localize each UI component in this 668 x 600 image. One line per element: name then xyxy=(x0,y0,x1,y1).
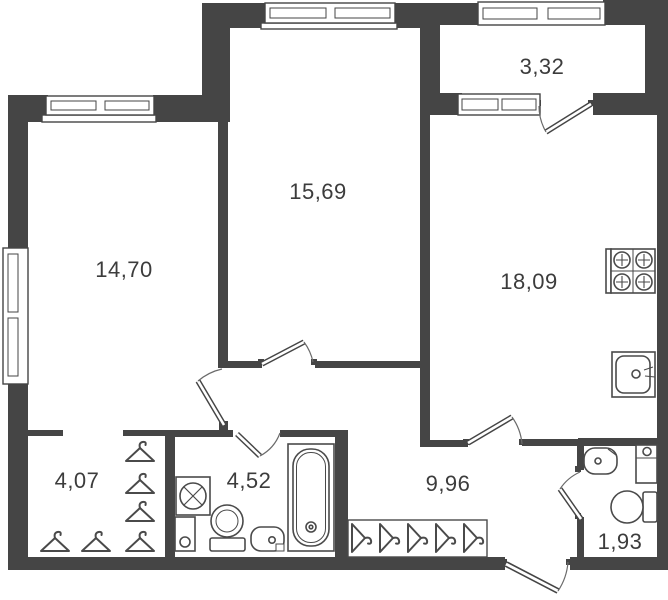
doors xyxy=(198,104,591,591)
hanger-icon xyxy=(82,532,110,551)
wc-toilet-icon xyxy=(611,491,657,523)
closet-hangers xyxy=(41,442,154,551)
hanger-icon xyxy=(126,502,154,521)
kitchen-sink-icon xyxy=(612,352,655,397)
stove-icon xyxy=(606,249,655,293)
label-kitchen: 18,09 xyxy=(500,269,558,295)
door-bathroom xyxy=(237,433,280,456)
entrance-door xyxy=(506,562,568,591)
fixtures xyxy=(41,249,657,557)
hallway-wardrobe xyxy=(348,520,487,557)
washing-machine-icon xyxy=(176,477,210,515)
hanger-icon xyxy=(41,532,69,551)
door-room-14 xyxy=(198,369,224,425)
hanger-icon xyxy=(126,474,154,493)
label-closet: 4,07 xyxy=(55,468,100,494)
window-balcony-glazing xyxy=(478,2,605,25)
window-balcony-kitchen xyxy=(458,94,540,115)
hanger-icon xyxy=(126,442,154,461)
label-hallway: 9,96 xyxy=(426,471,471,497)
door-wc xyxy=(560,472,581,519)
wc-cabinet-icon xyxy=(636,445,657,483)
window-room-14-top xyxy=(42,96,156,122)
window-room-15-top xyxy=(261,3,397,29)
window-left-wall xyxy=(3,248,28,384)
label-wc: 1,93 xyxy=(598,529,643,555)
hanger-icon xyxy=(126,532,154,551)
bathtub-icon xyxy=(288,444,334,551)
label-room-15-69: 15,69 xyxy=(289,179,347,205)
label-room-14-70: 14,70 xyxy=(95,257,153,283)
label-balcony: 3,32 xyxy=(520,54,565,80)
door-balcony xyxy=(539,104,591,132)
walls xyxy=(8,0,668,570)
label-bathroom: 4,52 xyxy=(227,468,272,494)
toilet-icon xyxy=(210,505,245,551)
floor-plan: 14,70 15,69 3,32 18,09 4,07 4,52 9,96 1,… xyxy=(0,0,668,600)
bathroom-cabinet-icon xyxy=(175,517,195,551)
door-room-15 xyxy=(262,342,313,364)
door-kitchen xyxy=(468,417,522,444)
washbasin-icon xyxy=(251,527,284,551)
wc-sink-icon xyxy=(584,448,617,474)
